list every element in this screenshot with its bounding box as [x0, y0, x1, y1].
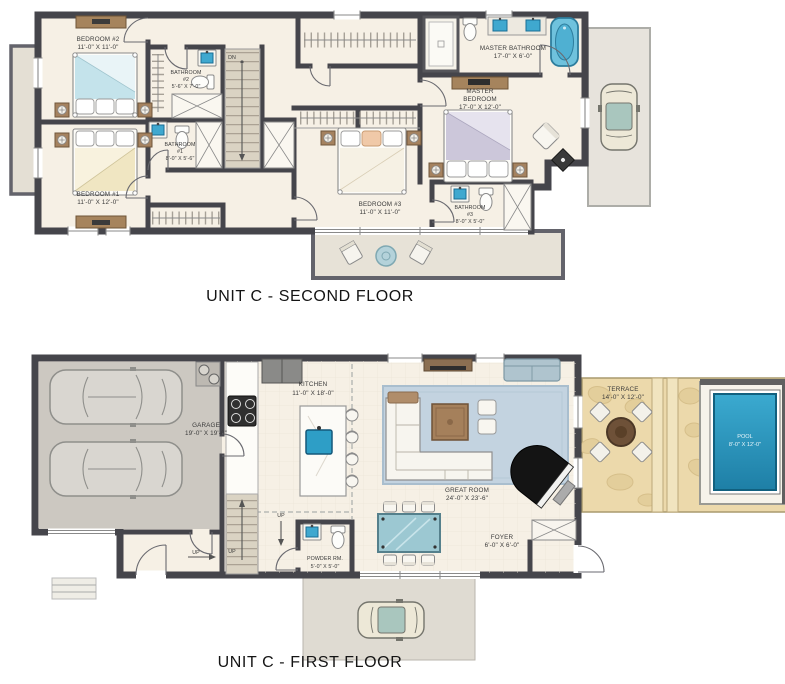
bedroom1-dims: 11'-0" X 12'-0" [77, 199, 119, 206]
rear-slider [315, 227, 528, 235]
island-sink [306, 430, 332, 454]
bathroom2-num: #2 [183, 77, 189, 83]
second-floor-title: UNIT C - SECOND FLOOR [206, 288, 414, 305]
powder-room-dims: 5'-0" X 5'-0" [311, 564, 340, 570]
garage-dims: 19'-0" X 19'-0" [185, 430, 227, 437]
terrace-dims: 14'-0" X 12'-0" [602, 394, 644, 401]
powder-room-label: POWDER RM. [307, 556, 343, 562]
kitchen-label: KITCHEN [299, 381, 328, 388]
master-bathroom-dims: 17'-0" X 6'-0" [494, 53, 532, 60]
garage-door [48, 529, 115, 536]
pool-area: POOL 8'-0" X 12'-0" [700, 379, 785, 504]
stairs-second-floor [225, 49, 260, 168]
front-steps [52, 578, 96, 599]
bedroom3-label: BEDROOM #3 [359, 201, 402, 208]
balcony-table [376, 246, 396, 266]
bathroom3-label: BATHROOM [454, 205, 485, 211]
site-wall-top [700, 379, 785, 385]
stairs-dn-label: DN [228, 55, 236, 61]
up-label-3: UP [277, 513, 285, 519]
bathroom1-dims: 8'-0" X 5'-6" [166, 156, 195, 162]
master-bathroom-label: MASTER BATHROOM [480, 45, 546, 52]
bathroom2-label: BATHROOM [170, 70, 201, 76]
pool-label: POOL [737, 434, 753, 440]
foyer-label: FOYER [491, 534, 514, 541]
great-room-label: GREAT ROOM [445, 487, 489, 494]
ottoman2 [478, 419, 496, 434]
unit-c-floor-plans: BEDROOM #2 11'-0" X 11'-0" BEDROOM #1 11… [0, 0, 785, 684]
foyer-closet [532, 520, 576, 540]
sofa-headrest [388, 392, 418, 403]
kitchen-counter [226, 362, 258, 494]
master-bedroom-label2: BEDROOM [463, 96, 497, 103]
floor-plan-page: BEDROOM #2 11'-0" X 11'-0" BEDROOM #1 11… [0, 0, 785, 684]
bathroom3-num: #3 [467, 212, 473, 218]
bathroom3-dims: 8'-0" X 5'-0" [456, 219, 485, 225]
great-room-sliders [360, 571, 480, 579]
pool-dims: 8'-0" X 12'-0" [729, 442, 761, 448]
ottoman1 [478, 400, 496, 415]
second-floor-plan: BEDROOM #2 11'-0" X 11'-0" BEDROOM #1 11… [11, 11, 650, 279]
up-label-2: UP [228, 549, 236, 555]
terrace-label: TERRACE [607, 386, 638, 393]
bedroom1-label: BEDROOM #1 [77, 191, 120, 198]
bathroom1-label: BATHROOM [164, 142, 195, 148]
dining-set [378, 502, 440, 565]
dining-table [378, 514, 440, 552]
first-floor-plan: POOL 8'-0" X 12'-0" [35, 354, 785, 661]
master-bedroom-dims: 17'-0" X 12'-0" [459, 104, 501, 111]
up-label-1: UP [192, 550, 200, 556]
kitchen-dims: 11'-0" X 18'-0" [292, 390, 334, 397]
bedroom2-label: BEDROOM #2 [77, 36, 120, 43]
great-room-dims: 24'-0" X 23'-6" [446, 495, 488, 502]
range [228, 396, 256, 426]
master-bedroom-label1: MASTER [466, 88, 493, 95]
bathroom1-num: #1 [177, 149, 183, 155]
kitchen-island [300, 406, 346, 496]
foyer-dims: 6'-0" X 6'-0" [485, 542, 520, 549]
driveway-car-upper [598, 84, 640, 150]
garage-label: GARAGE [192, 422, 220, 429]
bedroom3-dims: 11'-0" X 11'-0" [359, 209, 400, 216]
driveway-car-front [358, 599, 424, 641]
terrace-walk-strip2 [667, 378, 678, 512]
bedroom2-dims: 11'-0" X 11'-0" [77, 44, 118, 51]
first-floor-title: UNIT C - FIRST FLOOR [218, 654, 403, 671]
bathroom2-dims: 5'-6" X 7'-0" [172, 84, 201, 90]
terrace-walk-strip1 [652, 378, 663, 512]
